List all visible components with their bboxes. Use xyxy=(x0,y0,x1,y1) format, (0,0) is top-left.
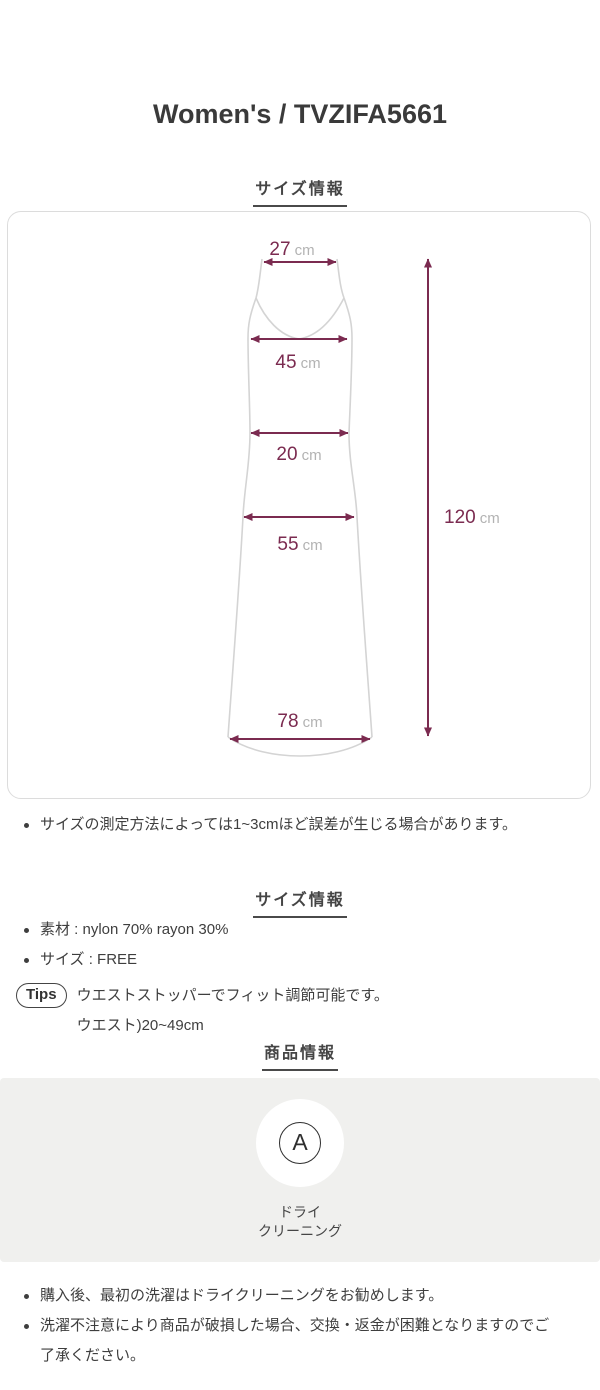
product-note-item: 洗濯不注意により商品が破損した場合、交換・返金が困難となりますのでご了承ください… xyxy=(22,1311,560,1371)
product-info-header: 商品情報 xyxy=(0,1039,600,1071)
product-notes-list: 購入後、最初の洗濯はドライクリーニングをお勧めします。 洗濯不注意により商品が破… xyxy=(22,1281,560,1371)
care-symbol-label-line1: ドライ xyxy=(0,1203,600,1222)
size-info-header-2-label: サイズ情報 xyxy=(253,886,347,918)
measure-label-bust: 45cm xyxy=(275,352,320,373)
material-item: 素材 : nylon 70% rayon 30% xyxy=(22,915,582,945)
size-item: サイズ : FREE xyxy=(22,945,582,975)
care-instructions-panel: A ドライ クリーニング xyxy=(0,1078,600,1262)
tips-text-line1: ウエストストッパーでフィット調節可能です。 xyxy=(77,984,389,1008)
dry-clean-symbol-icon: A xyxy=(279,1122,321,1164)
measure-label-hem: 78cm xyxy=(277,711,322,732)
product-detail-page: Women's / TVZIFA5661 サイズ情報 xyxy=(0,0,600,1390)
product-note-text-1: 購入後、最初の洗濯はドライクリーニングをお勧めします。 xyxy=(40,1287,443,1304)
product-note-text-2: 洗濯不注意により商品が破損した場合、交換・返金が困難となりますのでご了承ください… xyxy=(40,1317,549,1364)
measure-label-waist: 20cm xyxy=(276,444,321,465)
size-note-text: サイズの測定方法によっては1~3cmほど誤差が生じる場合があります。 xyxy=(40,816,517,833)
size-info-header-2: サイズ情報 xyxy=(0,886,600,918)
page-title: Women's / TVZIFA5661 xyxy=(0,99,600,130)
size-note-list: サイズの測定方法によっては1~3cmほど誤差が生じる場合があります。 xyxy=(22,814,582,836)
size-text: サイズ : FREE xyxy=(40,951,137,968)
measure-labels: 27cm 45cm 20cm 55cm 78cm 120cm xyxy=(269,239,499,732)
dress-neckline xyxy=(256,298,344,339)
measure-label-length: 120cm xyxy=(444,507,500,528)
size-note-item: サイズの測定方法によっては1~3cmほど誤差が生じる場合があります。 xyxy=(22,814,582,836)
tips-text-line2: ウエスト)20~49cm xyxy=(77,1011,389,1041)
tips-section: Tips ウエストストッパーでフィット調節可能です。 ウエスト)20~49cm xyxy=(16,983,389,1041)
product-info-header-label: 商品情報 xyxy=(262,1039,338,1071)
dress-left-strap xyxy=(256,259,262,298)
material-text: 素材 : nylon 70% rayon 30% xyxy=(40,921,228,938)
tips-badge: Tips xyxy=(16,983,67,1008)
size-diagram: 27cm 45cm 20cm 55cm 78cm 120cm xyxy=(8,212,590,798)
care-symbol-circle: A xyxy=(256,1099,344,1187)
size-details-list: 素材 : nylon 70% rayon 30% サイズ : FREE xyxy=(22,915,582,975)
care-symbol-label: ドライ クリーニング xyxy=(0,1203,600,1241)
measure-label-shoulder: 27cm xyxy=(269,239,314,260)
measure-arrows xyxy=(230,259,428,739)
product-note-item: 購入後、最初の洗濯はドライクリーニングをお勧めします。 xyxy=(22,1281,560,1311)
dress-right-strap xyxy=(337,259,344,298)
dress-outline xyxy=(228,259,372,756)
size-info-header-1: サイズ情報 xyxy=(0,175,600,207)
size-diagram-box: 27cm 45cm 20cm 55cm 78cm 120cm xyxy=(7,211,591,799)
size-info-header-1-label: サイズ情報 xyxy=(253,175,347,207)
tips-text: ウエストストッパーでフィット調節可能です。 ウエスト)20~49cm xyxy=(77,983,389,1041)
measure-label-hip: 55cm xyxy=(277,534,322,555)
care-symbol-label-line2: クリーニング xyxy=(0,1222,600,1241)
